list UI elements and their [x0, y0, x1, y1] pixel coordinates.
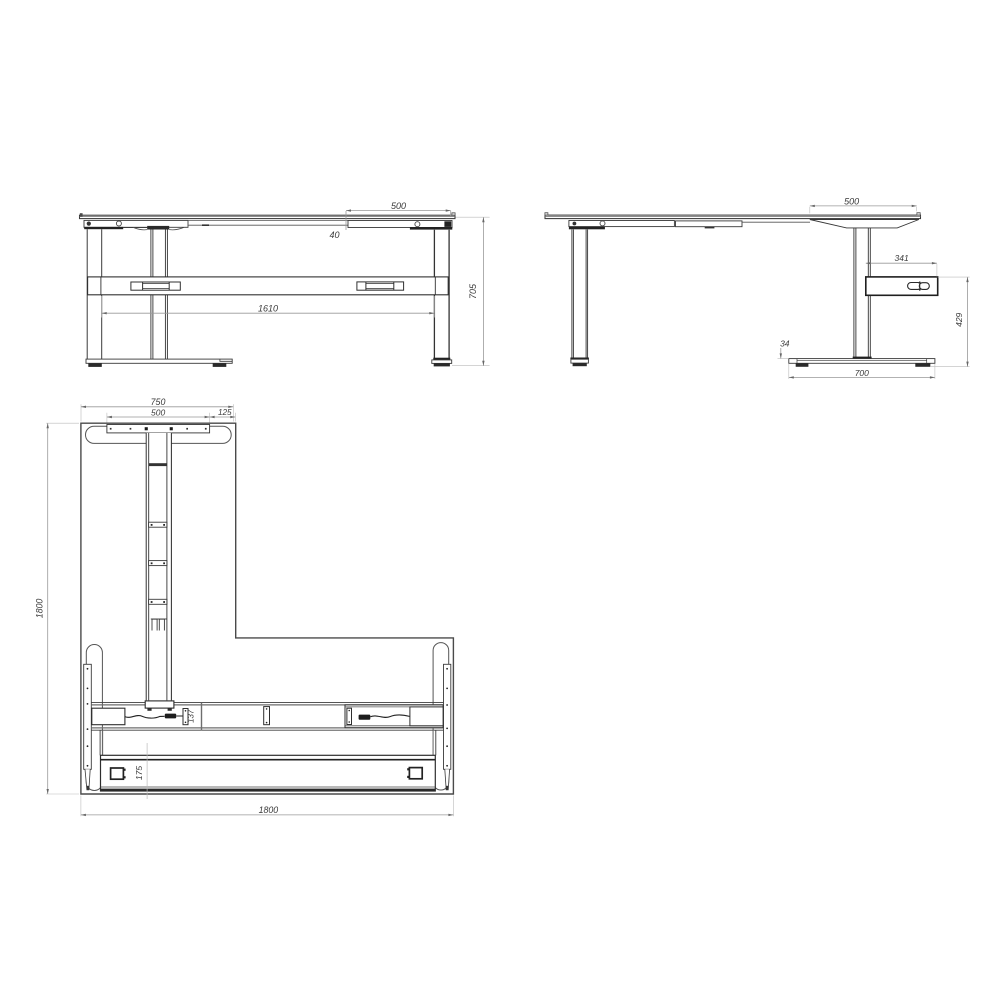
svg-text:40: 40 — [329, 230, 339, 240]
svg-text:1800: 1800 — [259, 805, 279, 815]
svg-text:500: 500 — [844, 196, 859, 206]
svg-text:125: 125 — [218, 408, 232, 417]
svg-text:705: 705 — [468, 283, 478, 299]
svg-text:500: 500 — [151, 407, 165, 417]
svg-text:175: 175 — [134, 766, 144, 780]
svg-text:137: 137 — [187, 709, 196, 723]
svg-text:1800: 1800 — [34, 599, 44, 619]
svg-text:341: 341 — [895, 253, 909, 263]
svg-text:429: 429 — [954, 312, 964, 326]
svg-text:750: 750 — [151, 397, 166, 407]
svg-text:1610: 1610 — [258, 303, 278, 313]
svg-text:700: 700 — [855, 368, 869, 378]
svg-text:500: 500 — [391, 201, 406, 211]
svg-text:34: 34 — [780, 339, 790, 349]
